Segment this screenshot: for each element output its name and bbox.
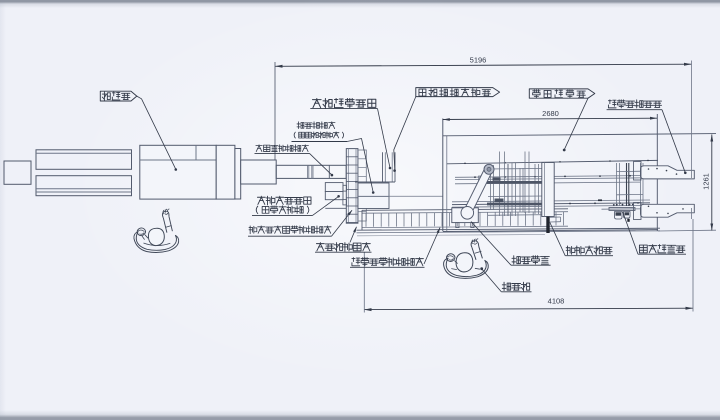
svg-text:5196: 5196 — [470, 56, 487, 65]
svg-text:1261: 1261 — [702, 173, 711, 190]
svg-text:2680: 2680 — [542, 109, 559, 118]
svg-text:4108: 4108 — [548, 297, 565, 306]
